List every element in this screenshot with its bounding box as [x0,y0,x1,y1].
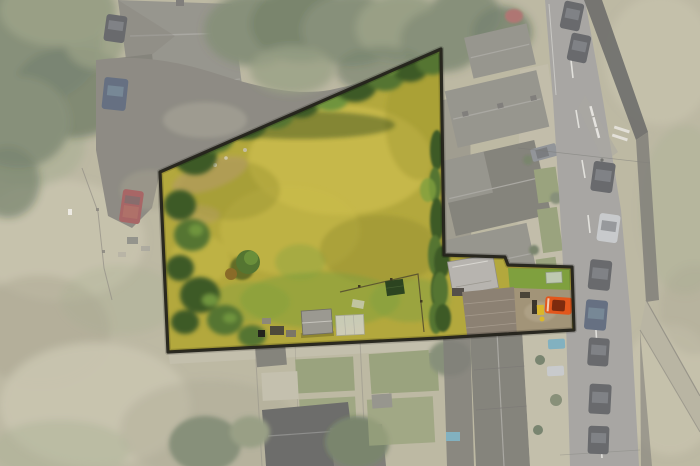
grey-shed [299,309,334,338]
greenhouse [335,314,364,335]
aerial-photo-canvas [0,0,700,466]
strip-glasshouse [546,272,563,284]
green-shed [385,279,405,296]
aerial-photo: Aerial drone photograph of an irregular … [0,0,700,466]
yellow-bin [537,305,545,315]
doorway [532,300,537,314]
orange-car [544,296,572,315]
yellow-object [540,317,545,322]
brown-shrub [225,268,237,280]
